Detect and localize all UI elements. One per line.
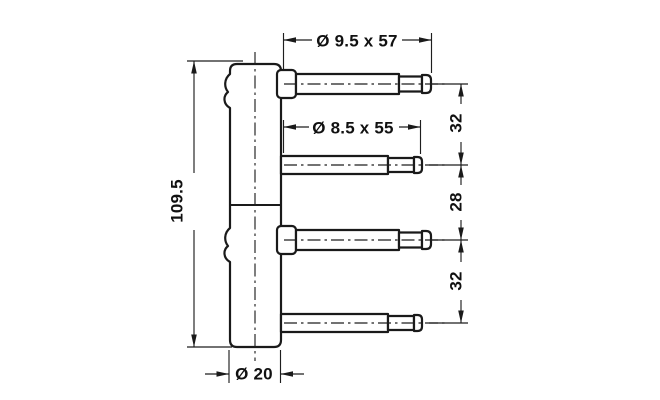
- arrowhead: [458, 228, 464, 241]
- label-pin-top-spec: Ø 9.5 x 57: [316, 32, 397, 51]
- arrowhead: [458, 165, 464, 178]
- arrowhead: [408, 124, 421, 130]
- label-gap-mid: 28: [447, 192, 466, 211]
- arrowhead: [284, 37, 297, 43]
- arrowhead: [217, 371, 230, 377]
- arrowhead: [191, 61, 197, 74]
- arrowhead: [419, 37, 432, 43]
- drawing-page: Ø 9.5 x 57 Ø 8.5 x 55 109.5 Ø 20 32 28 3…: [0, 0, 660, 400]
- arrowhead: [458, 153, 464, 166]
- label-body-length: 109.5: [168, 179, 187, 223]
- label-pin-mid-spec: Ø 8.5 x 55: [312, 119, 393, 138]
- arrowhead: [281, 371, 294, 377]
- label-gap-bottom: 32: [447, 271, 466, 290]
- arrowhead: [458, 240, 464, 253]
- arrowhead: [284, 124, 297, 130]
- arrowhead: [458, 311, 464, 324]
- hinge-body: [224, 64, 281, 347]
- arrowhead: [458, 84, 464, 97]
- label-body-diameter: Ø 20: [235, 365, 273, 384]
- label-gap-top: 32: [447, 113, 466, 132]
- hinge-technical-drawing: Ø 9.5 x 57 Ø 8.5 x 55 109.5 Ø 20 32 28 3…: [0, 0, 660, 400]
- arrowhead: [191, 335, 197, 348]
